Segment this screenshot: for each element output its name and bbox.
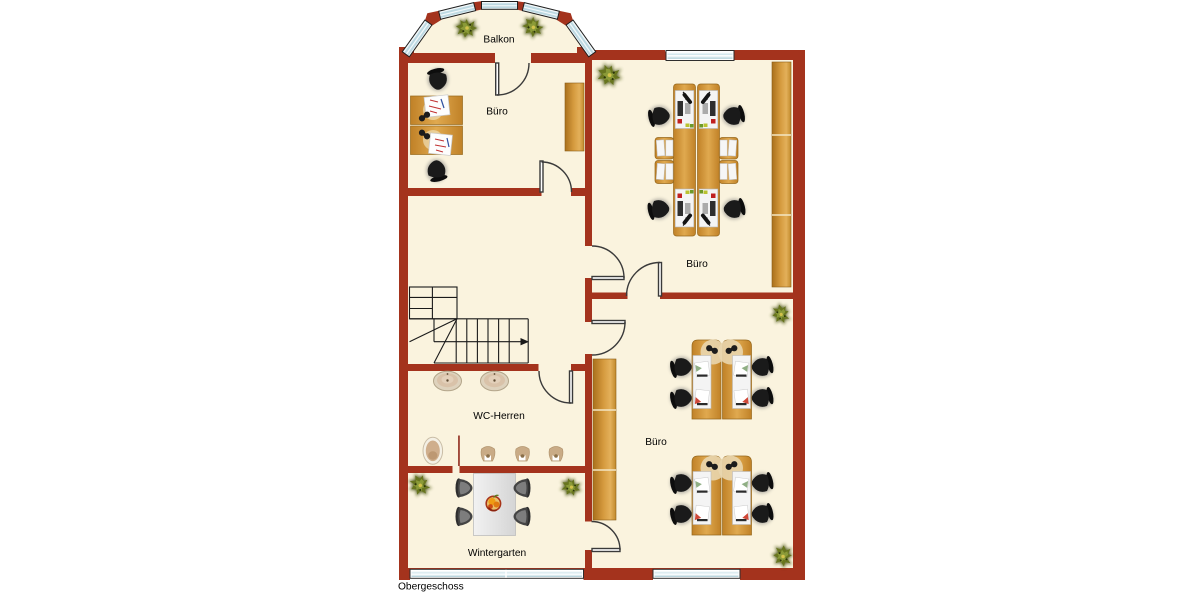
svg-text:WC-Herren: WC-Herren	[473, 411, 525, 422]
svg-text:Büro: Büro	[686, 259, 708, 270]
svg-text:Balkon: Balkon	[483, 35, 514, 46]
svg-text:Büro: Büro	[486, 107, 508, 118]
svg-text:Obergeschoss: Obergeschoss	[398, 582, 464, 593]
svg-text:Wintergarten: Wintergarten	[468, 548, 526, 559]
svg-text:Büro: Büro	[645, 437, 667, 448]
